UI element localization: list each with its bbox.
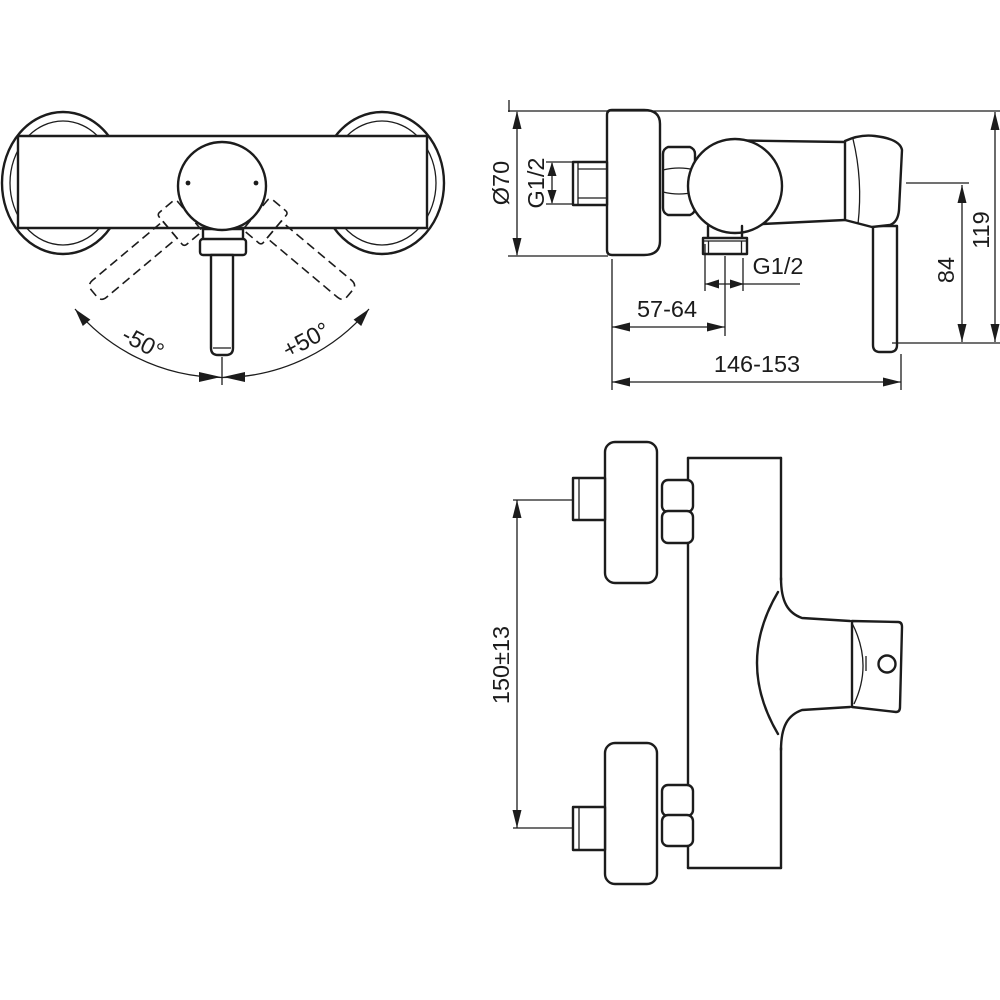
plan-rosette-top <box>605 442 657 583</box>
shower-mixer-technical-drawing: -50° +50° <box>0 0 1000 1000</box>
handle-cap-side <box>845 136 902 227</box>
dim-outlet-offset: 57-64 <box>612 259 725 390</box>
inlet-stub <box>573 162 607 205</box>
dim-inlet-thread: G1/2 <box>523 158 574 209</box>
dim-label-overall-height: 119 <box>968 211 994 248</box>
front-view: -50° +50° <box>2 112 444 385</box>
dim-label-outlet-thread: G1/2 <box>753 253 804 279</box>
handle-nut <box>200 239 246 255</box>
plan-handle-block <box>852 621 902 712</box>
side-view: Ø70 G1/2 G1/2 <box>488 100 1000 390</box>
plan-inlet-stub-top <box>573 478 605 520</box>
dim-label-inlet-thread: G1/2 <box>523 158 549 209</box>
dim-label-outlet-offset: 57-64 <box>637 296 697 322</box>
dim-label-overall-depth: 146-153 <box>714 351 800 377</box>
plan-hex-nut-bottom <box>662 785 693 846</box>
dim-overall-depth: 146-153 <box>612 351 901 390</box>
dim-label-rosette-diameter: Ø70 <box>488 161 514 205</box>
dim-label-handle-drop: 84 <box>933 257 959 283</box>
plan-inlet-stub-bottom <box>573 807 605 850</box>
screw-dot-left <box>186 181 191 186</box>
handle-shaft <box>211 255 233 355</box>
handle-lever-side <box>873 226 897 352</box>
plan-body <box>688 458 850 868</box>
arc-arrow-center-right <box>223 372 245 382</box>
angle-label-right: +50° <box>278 317 334 363</box>
valve-face-circle <box>178 142 266 230</box>
dim-label-inlet-spacing: 150±13 <box>488 626 514 704</box>
dim-rosette-diameter: Ø70 <box>488 111 522 256</box>
cartridge-circle <box>688 139 782 233</box>
dim-handle-drop: 84 <box>906 183 969 342</box>
screw-dot-right <box>254 181 259 186</box>
wall-rosette-side <box>607 110 660 255</box>
arc-arrow-center-left <box>199 372 221 382</box>
plan-hex-nut-top <box>662 480 693 543</box>
dim-overall-height: 119 <box>968 112 1000 342</box>
plan-view: 150±13 <box>488 442 902 884</box>
dim-inlet-spacing: 150±13 <box>488 500 572 828</box>
technical-drawing-page: -50° +50° <box>0 0 1000 1000</box>
dim-outlet-thread: G1/2 <box>705 244 803 336</box>
handle-assembly <box>200 229 246 355</box>
plan-rosette-bottom <box>605 743 657 884</box>
angle-label-left: -50° <box>118 321 169 364</box>
